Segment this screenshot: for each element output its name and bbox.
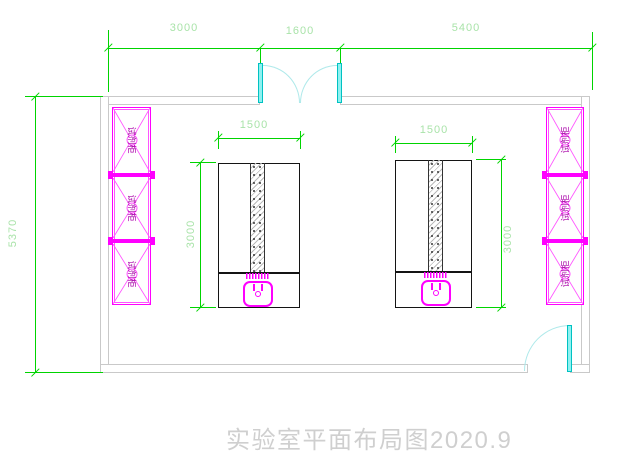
dimension-label-room-height: 5370 xyxy=(7,208,19,258)
wall-top-right-segment xyxy=(340,96,590,105)
cabinet: 试剂柜 xyxy=(547,108,583,172)
dimension-line-top xyxy=(108,48,592,49)
dimension-line-left xyxy=(35,97,36,373)
sink-basin-icon xyxy=(421,280,451,306)
door-swing-arc-icon xyxy=(524,325,570,371)
dimension-label-top-right: 5400 xyxy=(441,22,491,34)
dimension-extension xyxy=(592,32,593,90)
dimension-extension xyxy=(260,48,261,63)
cabinet-column-left: 试剂柜 试剂柜 试剂柜 xyxy=(112,107,151,305)
drawing-title: 实验室平面布局图2020.9 xyxy=(226,420,512,455)
sink-grate-icon xyxy=(246,273,269,279)
cabinet: 试剂柜 xyxy=(113,108,150,172)
cabinet-shelf-divider xyxy=(546,173,584,177)
bench-service-strip xyxy=(428,160,443,271)
door-swing-arc-icon xyxy=(263,65,300,103)
sink-drain-icon xyxy=(255,291,261,297)
cabinet: 试剂柜 xyxy=(113,244,150,304)
dimension-extension xyxy=(108,30,109,92)
dimension-label-bench2-height: 3000 xyxy=(502,214,514,264)
dimension-label-bench1-height: 3000 xyxy=(185,209,197,259)
cabinet-shelf-divider xyxy=(112,173,151,177)
cabinet-label: 试剂柜 xyxy=(125,260,138,287)
door-leaf-icon xyxy=(258,63,263,103)
dimension-extension xyxy=(190,162,216,163)
wall-bottom-corner xyxy=(570,364,590,373)
wall-top-left-segment xyxy=(100,96,260,105)
dimension-extension xyxy=(218,131,219,149)
dimension-label-bench1-width: 1500 xyxy=(229,119,279,131)
floor-plan-drawing: 3000 1600 5400 5370 试剂柜 试剂柜 试剂柜 试 xyxy=(0,0,619,469)
cabinet-column-right: 试剂柜 试剂柜 试剂柜 xyxy=(546,107,584,305)
cabinet-shelf-divider xyxy=(112,239,151,243)
dimension-extension xyxy=(190,307,216,308)
cabinet: 试剂柜 xyxy=(547,244,583,304)
door-leaf-icon xyxy=(567,325,572,372)
dimension-extension xyxy=(300,131,301,149)
cabinet: 试剂柜 xyxy=(547,178,583,238)
dimension-extension xyxy=(340,48,341,63)
cabinet-shelf-divider xyxy=(546,239,584,243)
sink-basin-icon xyxy=(243,281,273,307)
sink-tap-icon xyxy=(431,283,433,290)
dimension-extension xyxy=(395,136,396,153)
sink-tap-icon xyxy=(253,284,255,291)
door-leaf-icon xyxy=(337,63,342,103)
door-swing-arc-icon xyxy=(300,65,337,103)
lab-bench-right xyxy=(395,160,472,308)
cabinet-label: 试剂柜 xyxy=(559,260,572,287)
lab-bench-left xyxy=(218,163,300,308)
sink-tap-icon xyxy=(261,284,263,291)
cabinet-label: 试剂柜 xyxy=(559,126,572,153)
dimension-label-top-middle: 1600 xyxy=(275,25,325,37)
sink-tap-icon xyxy=(439,283,441,290)
cabinet: 试剂柜 xyxy=(113,178,150,238)
dimension-line-bench2-width xyxy=(395,143,472,144)
sink-grate-icon xyxy=(424,272,447,278)
cabinet-label: 试剂柜 xyxy=(559,194,572,221)
bench-service-strip xyxy=(250,163,265,272)
wall-left xyxy=(100,96,109,373)
dimension-label-bench2-width: 1500 xyxy=(409,124,459,136)
dimension-line-bench1-width xyxy=(218,138,300,139)
cabinet-label: 试剂柜 xyxy=(125,194,138,221)
cabinet-label: 试剂柜 xyxy=(125,126,138,153)
dimension-extension xyxy=(472,136,473,153)
wall-bottom-left-segment xyxy=(100,364,528,373)
sink-drain-icon xyxy=(433,290,439,296)
dimension-label-top-left: 3000 xyxy=(159,22,209,34)
dimension-line-bench1-height xyxy=(200,163,201,308)
